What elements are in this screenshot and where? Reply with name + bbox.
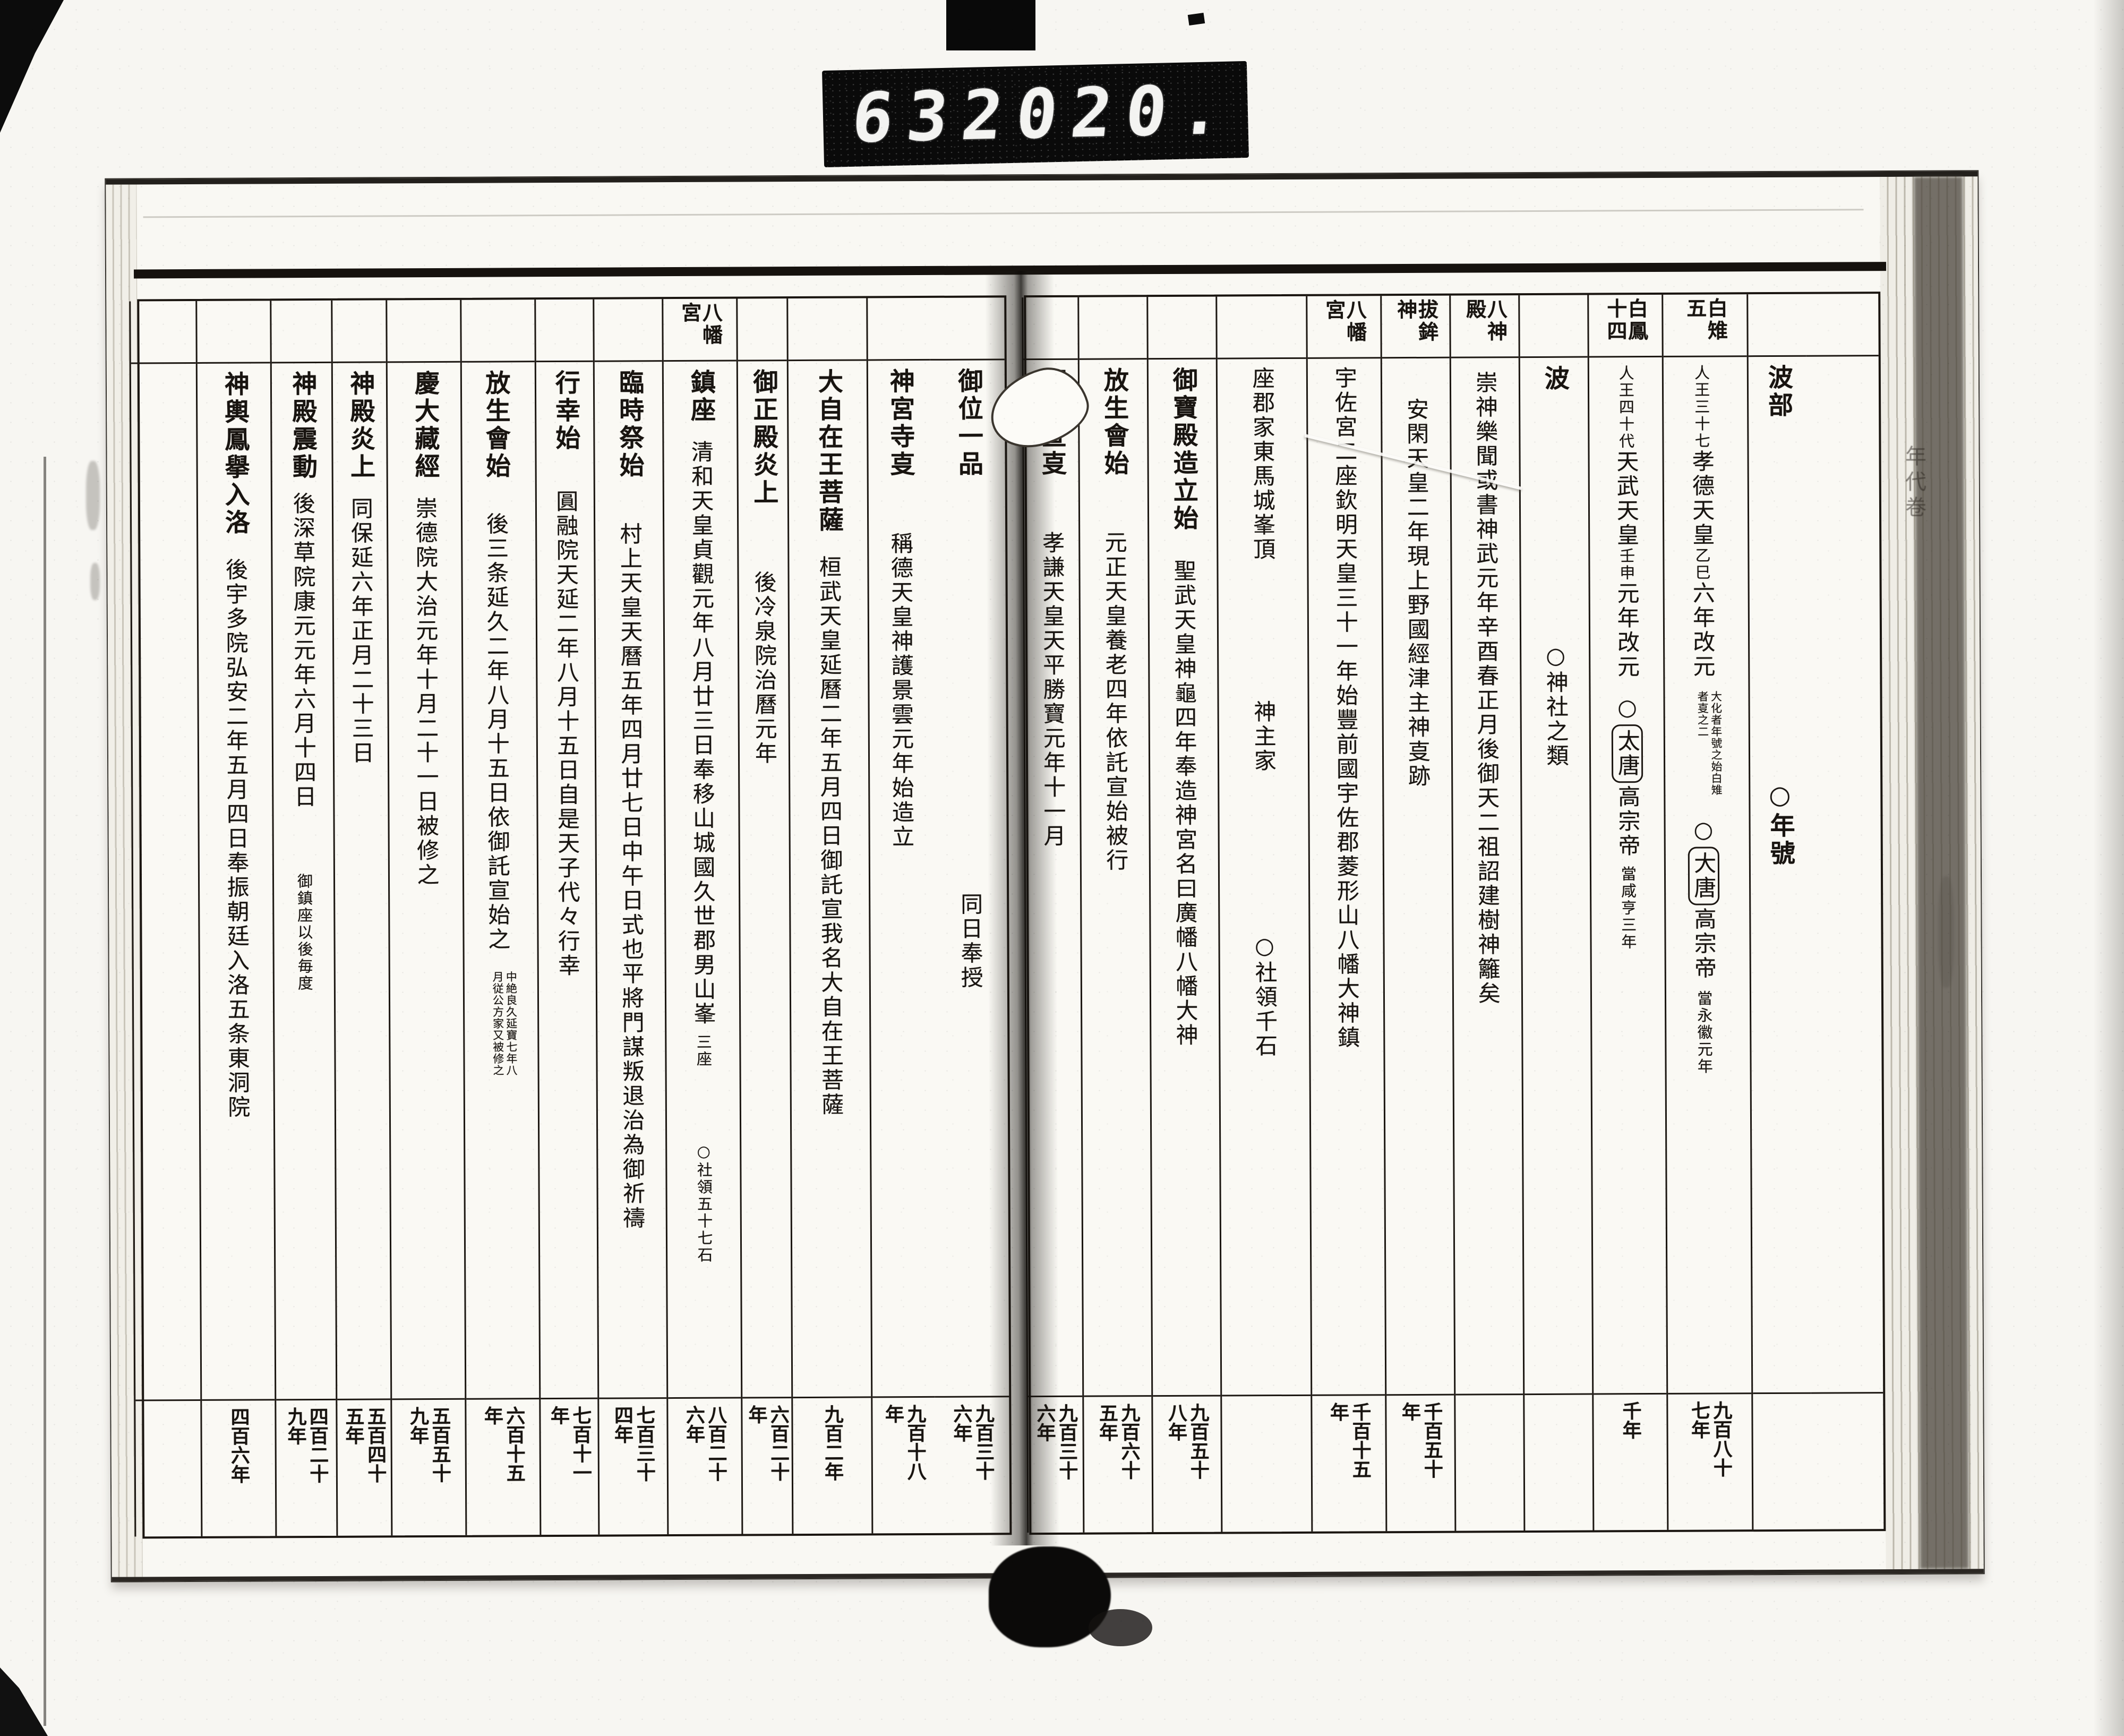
text-segment: 後三条延久二年八月十五日依御託宣始之 xyxy=(483,512,511,952)
text-segment: 三座 xyxy=(694,1034,712,1068)
column-nukihoko: 拔鉾神安閑天皇二年現上野國經津主神㕝跡千百五十年 xyxy=(1380,296,1454,1532)
column-header xyxy=(1148,297,1216,360)
film-tick-mark xyxy=(1188,13,1205,25)
text-segment: 天武天皇 xyxy=(1613,450,1640,548)
column-gyoko: 行幸始圓融院天延二年八月十五日自是天子代々行幸七百十一年 xyxy=(534,300,598,1535)
elapsed-years-text: 九百三十六年 xyxy=(950,1404,994,1483)
text-segment: 同日奉授 xyxy=(957,893,984,990)
elapsed-years-cell: 六百二十年 xyxy=(742,1397,792,1534)
column-header: 八幡宮 xyxy=(663,299,736,362)
text-segment: 同保延六年正月二十三日 xyxy=(347,497,374,766)
elapsed-years-cell: 千年 xyxy=(1594,1393,1667,1530)
elapsed-years-cell xyxy=(1753,1392,1811,1529)
column-header xyxy=(461,300,535,363)
text-segment: 放生會始 xyxy=(481,370,510,480)
elapsed-years-text: 六百十五年 xyxy=(481,1406,525,1485)
elapsed-years-text: 九百十八年 xyxy=(881,1404,926,1484)
column-jinguji: 神宮寺㕝稱德天皇神護景雲元年始造立九百十八年 xyxy=(866,298,935,1534)
column-header: 拔鉾神 xyxy=(1382,296,1450,359)
elapsed-years-cell: 九百五十八年 xyxy=(1153,1395,1221,1533)
column-body: 神輿鳳擧入洛後宇多院弘安二年五月四日奉振朝廷入洛五条東洞院 xyxy=(198,363,275,1399)
elapsed-years-cell: 九百二年 xyxy=(793,1396,871,1534)
elapsed-years-cell: 九百八十七年 xyxy=(1668,1392,1752,1530)
elapsed-years-cell: 四百六年 xyxy=(202,1399,275,1536)
column-header xyxy=(1520,295,1588,358)
text-segment: 清和天皇貞觀元年八月廿三日奉移山城國久世郡男山峯 xyxy=(688,440,716,1027)
column-daijizaio: 大自在王菩薩桓武天皇延曆二年五月四日御託宣我名大自在王菩薩九百二年 xyxy=(786,298,871,1534)
text-segment: 波 xyxy=(1540,365,1569,393)
film-hole-blob-small xyxy=(1089,1609,1152,1646)
elapsed-years-cell: 九百三十六年 xyxy=(935,1396,1009,1533)
text-segment: ○社領五十七石 xyxy=(695,1142,713,1264)
text-segment: ○ xyxy=(1614,694,1640,722)
column-ha-jinja: 波○神社之類 xyxy=(1518,295,1592,1531)
column-chinza: 八幡宮鎮座清和天皇貞觀元年八月廿三日奉移山城國久世郡男山峯三座○社領五十七石八百… xyxy=(662,299,741,1535)
column-header xyxy=(197,301,270,364)
elapsed-years-cell xyxy=(1811,1392,1883,1529)
page-stack-right xyxy=(1880,176,1983,1569)
column-body: 波○神社之類 xyxy=(1520,358,1592,1394)
column-goi-ippon: 御位一品同日奉授九百三十六年 xyxy=(930,297,1009,1533)
column-body: 人王四十代天武天皇壬申元年改元○太唐高宗帝當咸亨三年 xyxy=(1589,357,1667,1393)
column-header xyxy=(1079,297,1147,360)
column-body: 御位一品同日奉授 xyxy=(930,360,1009,1396)
column-header-text: 八幡宮 xyxy=(679,302,721,360)
column-body: 御託宣㕝孝謙天皇天平勝寶元年十一月 xyxy=(1024,360,1083,1396)
elapsed-years-text: 九百五十八年 xyxy=(1164,1403,1209,1483)
elapsed-years-cell: 九百三十六年 xyxy=(1028,1396,1083,1533)
elapsed-years-text: 五百四十五年 xyxy=(342,1406,386,1486)
column-header-text: 白雉五 xyxy=(1684,297,1726,355)
column-header xyxy=(387,300,460,363)
elapsed-years-text: 九百二年 xyxy=(821,1405,843,1484)
text-segment: 孝謙天皇天平勝寶元年十一月 xyxy=(1039,531,1067,849)
elapsed-years-text: 四百六年 xyxy=(227,1407,250,1487)
column-body: 御寶殿造立始聖武天皇神龜四年奉造神宮名曰廣幡八幡大神 xyxy=(1149,360,1221,1396)
elapsed-years-text: 千百十五年 xyxy=(1326,1402,1371,1482)
elapsed-years-cell: 七百十一年 xyxy=(541,1398,598,1535)
column-header xyxy=(131,301,196,364)
text-segment: 太唐 xyxy=(1612,724,1643,783)
text-segment: ○年號 xyxy=(1765,781,1795,868)
column-blank-right xyxy=(1806,294,1883,1529)
column-habe-nengo: 波部○年號 xyxy=(1746,294,1811,1529)
column-body: 神宮寺㕝稱德天皇神護景雲元年始造立 xyxy=(868,361,935,1396)
text-segment: 元年改元 xyxy=(1614,581,1640,679)
column-header xyxy=(1217,296,1306,360)
elapsed-years-text: 九百八十七年 xyxy=(1688,1400,1732,1480)
right-margin-title: 年代卷 xyxy=(1898,445,1929,521)
elapsed-years-cell: 千百十五年 xyxy=(1312,1394,1385,1532)
text-segment: 鎮座 xyxy=(686,369,715,424)
text-segment: 稱德天皇神護景雲元年始造立 xyxy=(887,532,915,849)
column-header xyxy=(332,300,386,363)
text-segment: 神主家 xyxy=(1251,700,1277,773)
column-hojoe-iwashimizu: 放生會始後三条延久二年八月十五日依御託宣始之中絶良久延寶七年八月従公方家又被修之… xyxy=(460,300,539,1535)
text-segment: 神宮寺㕝 xyxy=(885,368,915,478)
column-body: 座郡家東馬城峯頂神主家○社領千石 xyxy=(1218,359,1311,1395)
text-segment: ○ xyxy=(1690,816,1716,844)
elapsed-years-cell: 八百二十六年 xyxy=(668,1397,741,1535)
text-segment: 後宇多院弘安二年五月四日奉振朝廷入洛五条東洞院 xyxy=(222,558,251,1120)
elapsed-years-text: 六百二十年 xyxy=(745,1405,789,1484)
elapsed-years-text: 五百五十九年 xyxy=(406,1406,450,1486)
elapsed-years-cell xyxy=(1525,1393,1592,1531)
text-segment: 欽明天皇三十一年始豐前國宇佐郡菱形山八幡大神鎮 xyxy=(1332,488,1360,1050)
column-body: 鎮座清和天皇貞觀元年八月廿三日奉移山城國久世郡男山峯三座○社領五十七石 xyxy=(664,362,741,1398)
text-segment: 安閑天皇二年現上野國經津主神㕝跡 xyxy=(1403,398,1431,789)
column-header xyxy=(788,298,867,361)
elapsed-years-text: 七百十一年 xyxy=(547,1406,591,1485)
column-body: 放生會始後三条延久二年八月十五日依御託宣始之中絶良久延寶七年八月従公方家又被修之 xyxy=(462,362,539,1398)
column-body: 行幸始圓融院天延二年八月十五日自是天子代々行幸 xyxy=(536,362,598,1398)
paper-streak xyxy=(143,209,1864,218)
elapsed-years-text: 七百三十四年 xyxy=(611,1405,655,1485)
book-spread: 御位一品同日奉授九百三十六年神宮寺㕝稱德天皇神護景雲元年始造立九百十八年大自在王… xyxy=(106,171,1983,1581)
text-segment: 座郡家東馬城峯頂 xyxy=(1249,366,1276,562)
column-header xyxy=(271,301,331,363)
margin-smudge xyxy=(86,461,100,530)
column-blank-left xyxy=(129,301,201,1537)
film-corner-shadow xyxy=(0,0,64,133)
text-segment: 高宗帝 xyxy=(1691,907,1717,980)
text-segment: 大自在王菩薩 xyxy=(813,369,843,534)
text-segment: 聖武天皇神龜四年奉造神宮名曰廣幡八幡大神 xyxy=(1170,559,1198,1048)
film-corner-shadow-bottom xyxy=(0,1667,48,1736)
column-hakuchi: 白雉五人王三十七孝德天皇乙巳六年改元大化者年號之始白雉者㕝之二○大唐高宗帝當永徽… xyxy=(1661,294,1752,1530)
text-segment: 放生會始 xyxy=(1099,367,1129,477)
text-segment: 當永徽元年 xyxy=(1695,990,1714,1075)
text-segment: 大唐 xyxy=(1688,846,1719,905)
column-body: 慶大藏經崇德院大治元年十月二十一日被修之 xyxy=(388,363,465,1399)
elapsed-years-text: 九百六十五年 xyxy=(1095,1403,1140,1483)
column-header xyxy=(1806,294,1879,357)
margin-smudge xyxy=(1938,876,1954,988)
elapsed-years-cell: 五百五十九年 xyxy=(392,1398,465,1536)
text-segment: 後深草院康元元年六月十四日 xyxy=(289,492,317,809)
text-segment: 人王四十代 xyxy=(1616,365,1635,450)
column-header-text: 白鳳十四 xyxy=(1604,298,1647,356)
column-header-text: 八幡宮 xyxy=(1323,299,1365,357)
text-segment: 慶大藏經 xyxy=(410,370,440,481)
column-body: 臨時祭始村上天皇天曆五年四月廿七日中午日式也平將門謀叛退治為御祈禱 xyxy=(595,362,667,1398)
column-rinjisai: 臨時祭始村上天皇天曆五年四月廿七日中午日式也平將門謀叛退治為御祈禱七百三十四年 xyxy=(593,299,667,1535)
text-segment: 崇德院大治元年十月二十一日被修之 xyxy=(412,497,440,887)
elapsed-years-cell xyxy=(1455,1393,1523,1531)
column-header xyxy=(594,299,662,362)
elapsed-years-text: 千百五十年 xyxy=(1398,1402,1442,1482)
elapsed-years-text: 八百二十六年 xyxy=(682,1405,726,1485)
text-segment: 臨時祭始 xyxy=(614,369,644,480)
column-header xyxy=(868,298,930,361)
column-body: 波部○年號 xyxy=(1749,357,1811,1392)
column-body: 人王三十七孝德天皇乙巳六年改元大化者年號之始白雉者㕝之二○大唐高宗帝當永徽元年 xyxy=(1664,357,1752,1393)
column-body xyxy=(1806,356,1883,1392)
text-segment: 壬申 xyxy=(1617,548,1635,581)
column-mikoshi-juraku: 神輿鳳擧入洛後宇多院弘安二年五月四日奉振朝廷入洛五条東洞院四百六年 xyxy=(195,301,275,1536)
column-hakuho: 白鳳十四人王四十代天武天皇壬申元年改元○太唐高宗帝當咸亨三年千年 xyxy=(1587,295,1667,1530)
text-segment: 御正殿炎上 xyxy=(748,369,778,507)
text-segment: 村上天皇天曆五年四月廿七日中午日式也平將門謀叛退治為御祈禱 xyxy=(616,522,646,1230)
column-header: 八神殿 xyxy=(1451,295,1519,358)
column-gotakusen: 御託宣㕝孝謙天皇天平勝寶元年十一月九百三十六年 xyxy=(1022,297,1083,1533)
text-segment: 元正天皇養老四年依託宣始被行 xyxy=(1101,531,1129,873)
elapsed-years-cell: 九百十八年 xyxy=(872,1396,935,1534)
text-segment: 高宗帝 xyxy=(1615,785,1641,858)
column-header-text: 八神殿 xyxy=(1463,298,1506,356)
elapsed-years-cell xyxy=(135,1399,201,1537)
elapsed-years-text: 九百三十六年 xyxy=(1033,1404,1077,1483)
column-body: 御正殿炎上後冷泉院治曆元年 xyxy=(738,361,792,1397)
column-hojoe-usa: 放生會始元正天皇養老四年依託宣始被行九百六十五年 xyxy=(1077,297,1152,1533)
counter-left-digits: 632 xyxy=(849,75,1021,158)
elapsed-years-text: 四百二十九年 xyxy=(284,1407,328,1486)
column-header: 八幡宮 xyxy=(1307,296,1381,359)
column-header xyxy=(1023,297,1078,360)
column-header xyxy=(536,300,593,362)
left-page-table: 御位一品同日奉授九百三十六年神宮寺㕝稱德天皇神護景雲元年始造立九百十八年大自在王… xyxy=(137,295,1012,1538)
film-clip-mark xyxy=(946,0,1035,50)
column-header: 白鳳十四 xyxy=(1589,295,1662,358)
elapsed-years-cell: 五百四十五年 xyxy=(337,1398,391,1535)
column-goshoden-enjo: 御正殿炎上後冷泉院治曆元年六百二十年 xyxy=(736,298,792,1534)
film-edge-band xyxy=(2093,0,2124,1736)
elapsed-years-cell xyxy=(1222,1395,1311,1532)
column-body: 崇神樂聞或書神武元年辛酉春正月後御天二祖詔建樹神籬矣 xyxy=(1451,358,1523,1394)
column-header xyxy=(1748,294,1806,357)
text-segment: 崇神樂聞或書神武元年辛酉春正月後御天二祖詔建樹神籬矣 xyxy=(1472,371,1501,1006)
column-body: 神殿震動後深草院康元元年六月十四日御鎮座以後毎度 xyxy=(272,363,336,1399)
column-gohoden: 御寶殿造立始聖武天皇神龜四年奉造神宮名曰廣幡八幡大神九百五十八年 xyxy=(1146,297,1221,1533)
elapsed-years-cell: 千百五十年 xyxy=(1386,1394,1454,1532)
column-shinden-shindo: 神殿震動後深草院康元元年六月十四日御鎮座以後毎度四百二十九年 xyxy=(270,301,336,1536)
right-page-table: 波部○年號白雉五人王三十七孝德天皇乙巳六年改元大化者年號之始白雉者㕝之二○大唐高… xyxy=(1024,292,1886,1535)
column-usa-gu: 八幡宮宇佐宮二座欽明天皇三十一年始豐前國宇佐郡菱形山八幡大神鎮千百十五年 xyxy=(1306,296,1385,1532)
elapsed-years-cell: 四百二十九年 xyxy=(276,1399,336,1536)
column-header-text: 拔鉾神 xyxy=(1394,299,1437,357)
text-segment: 神殿炎上 xyxy=(345,370,375,481)
text-segment: ○神社之類 xyxy=(1543,643,1569,768)
column-header xyxy=(930,297,1005,361)
counter-right-digits: 020. xyxy=(1013,70,1239,155)
text-segment: 孝德天皇 xyxy=(1689,449,1715,547)
text-segment: 圓融院天延二年八月十五日自是天子代々行幸 xyxy=(553,490,581,978)
text-segment: 大化者年號之始白雉者㕝之二 xyxy=(1695,690,1723,805)
column-gunke: 座郡家東馬城峯頂神主家○社領千石 xyxy=(1215,296,1311,1532)
margin-smudge xyxy=(90,563,100,600)
text-segment: 波部 xyxy=(1763,364,1793,420)
text-segment: 後冷泉院治曆元年 xyxy=(751,570,778,766)
printed-frame-top-rule xyxy=(134,262,1886,278)
elapsed-years-cell: 六百十五年 xyxy=(466,1398,539,1535)
text-segment: 當咸亨三年 xyxy=(1618,866,1637,951)
frame-counter: 632 020. xyxy=(822,61,1249,167)
column-header: 白雉五 xyxy=(1663,294,1747,357)
column-body: 放生會始元正天皇養老四年依託宣始被行 xyxy=(1080,360,1152,1396)
column-daizokyo: 慶大藏經崇德院大治元年十月二十一日被修之五百五十九年 xyxy=(386,300,465,1536)
text-segment: 御鎮座以後毎度 xyxy=(295,873,313,992)
text-segment: 人王三十七 xyxy=(1692,365,1711,450)
text-segment: 六年改元 xyxy=(1689,581,1716,679)
text-segment: 神殿震動 xyxy=(287,371,317,481)
column-body xyxy=(131,364,201,1400)
text-segment: 桓武天皇延曆二年五月四日御託宣我名大自在王菩薩 xyxy=(816,555,844,1117)
column-header xyxy=(738,298,787,361)
column-body: 宇佐宮二座欽明天皇三十一年始豐前國宇佐郡菱形山八幡大神鎮 xyxy=(1308,358,1385,1395)
elapsed-years-text: 千年 xyxy=(1619,1401,1641,1481)
column-shinden-enjo: 神殿炎上同保延六年正月二十三日五百四十五年 xyxy=(331,300,391,1535)
text-segment: 宇佐宮二座 xyxy=(1331,366,1358,488)
elapsed-years-cell: 九百六十五年 xyxy=(1084,1395,1152,1533)
text-segment: 乙巳 xyxy=(1693,548,1711,581)
text-segment: 御位一品 xyxy=(953,368,983,478)
column-body: 安閑天皇二年現上野國經津主神㕝跡 xyxy=(1382,358,1454,1395)
text-segment: 行幸始 xyxy=(551,370,580,452)
column-body: 大自在王菩薩桓武天皇延曆二年五月四日御託宣我名大自在王菩薩 xyxy=(789,361,871,1397)
film-edge-line xyxy=(44,457,46,1726)
text-segment: 御寶殿造立始 xyxy=(1168,367,1198,533)
column-body: 神殿炎上同保延六年正月二十三日 xyxy=(333,363,391,1398)
text-segment: 中絶良久延寶七年八月従公方家又被修之 xyxy=(491,971,518,1085)
text-segment: 神輿鳳擧入洛 xyxy=(220,371,250,537)
elapsed-years-cell: 七百三十四年 xyxy=(599,1397,667,1535)
text-segment: ○社領千石 xyxy=(1252,933,1278,1058)
